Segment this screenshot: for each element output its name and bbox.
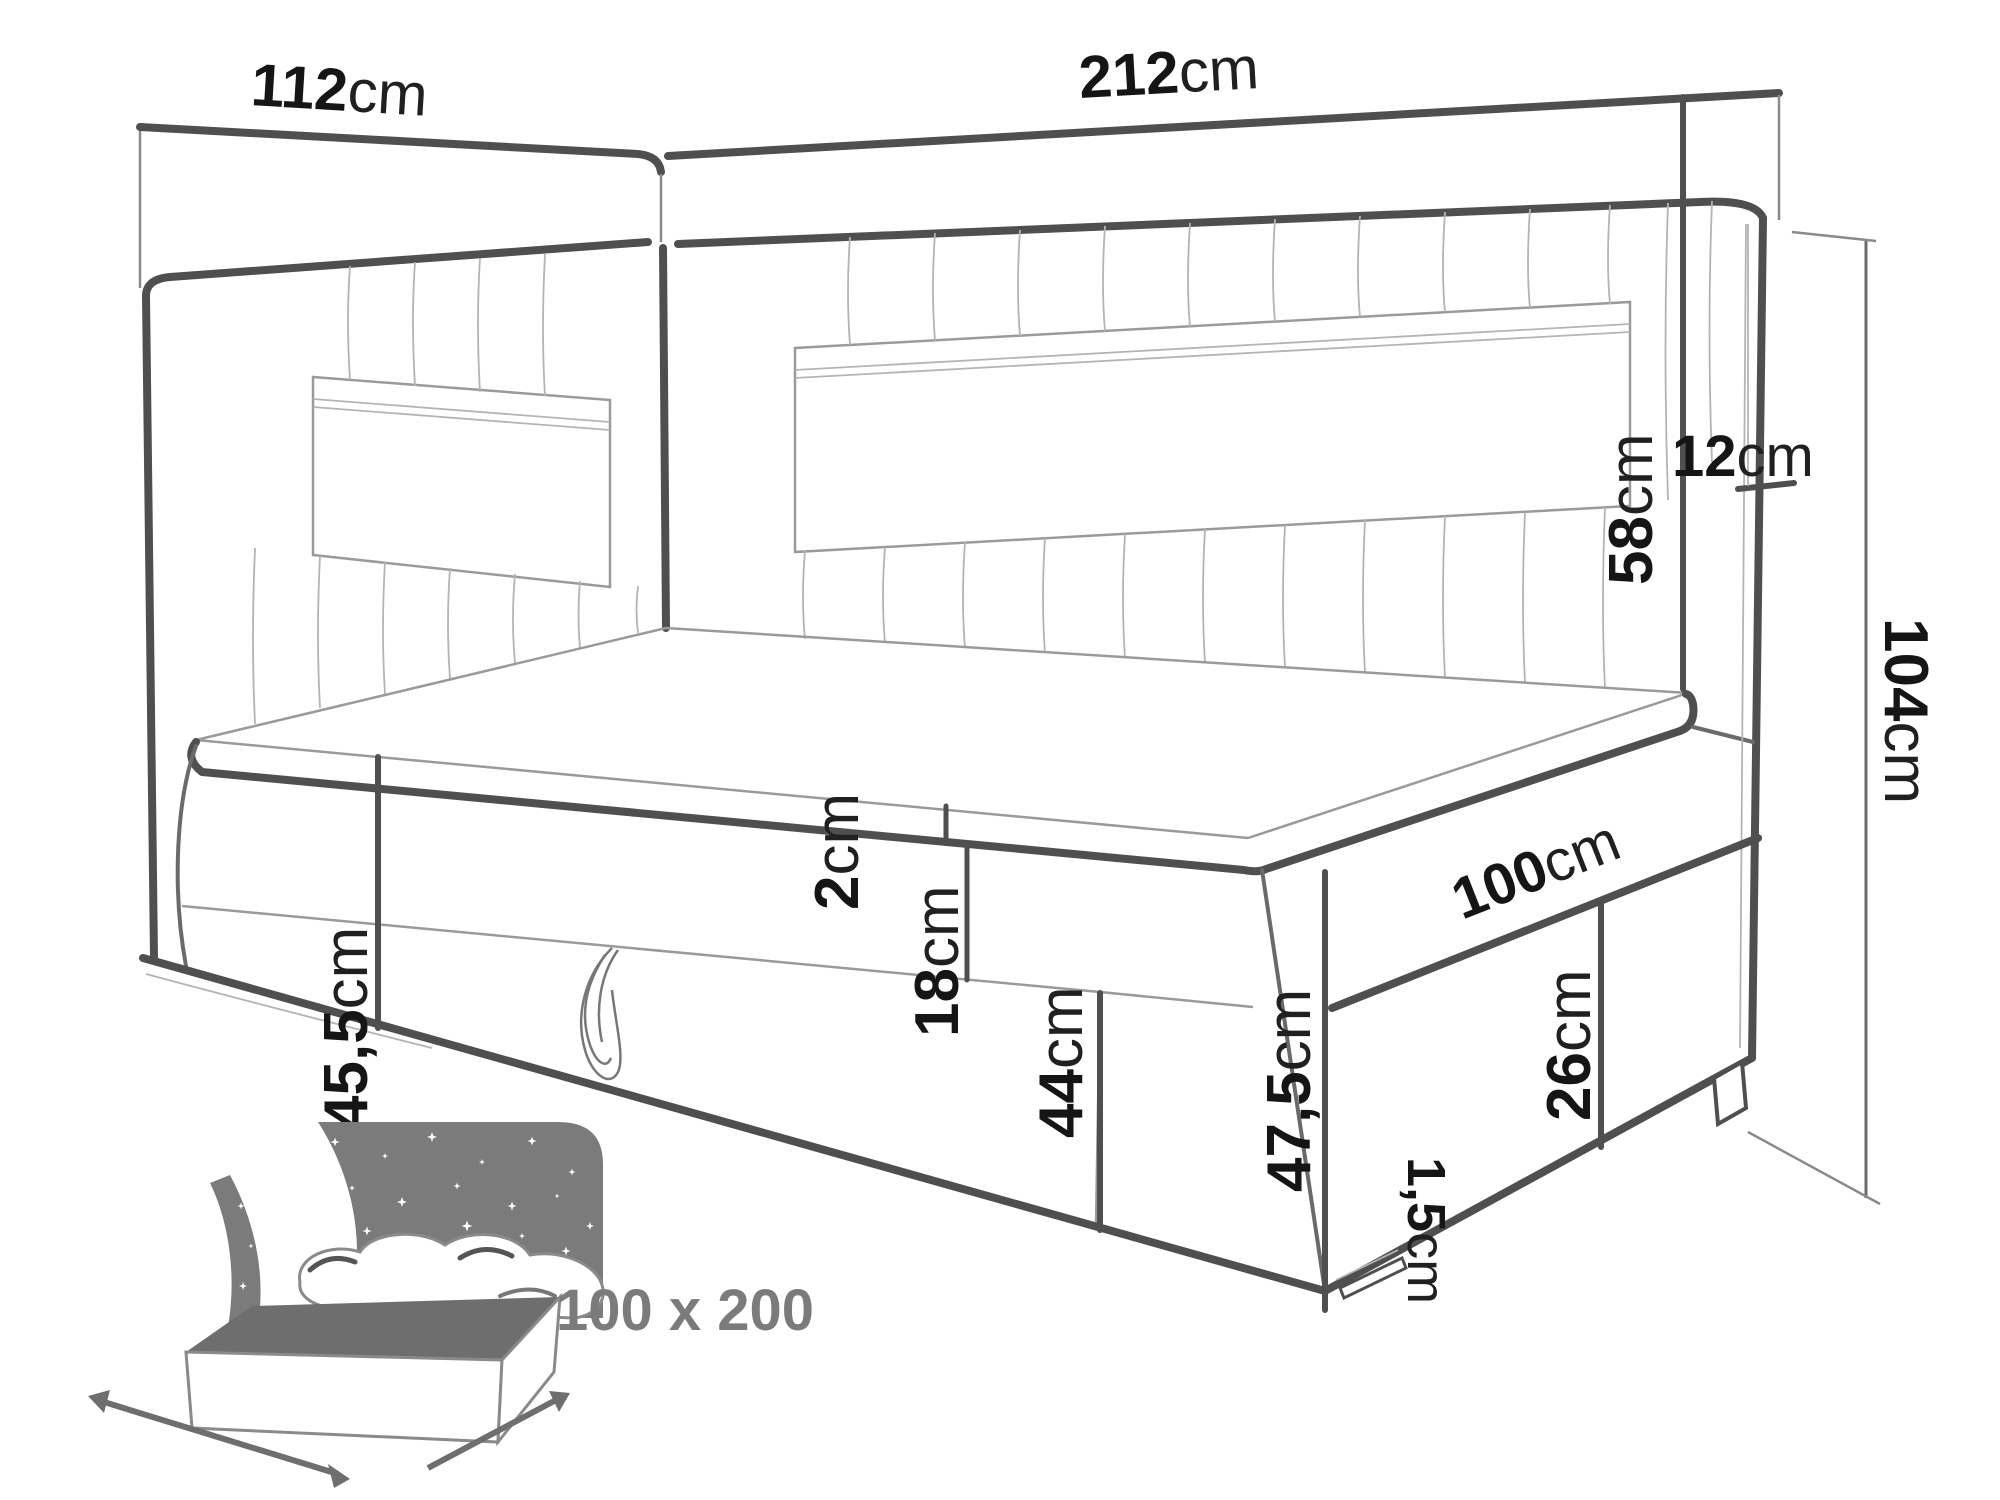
icon-mattress <box>186 1297 560 1442</box>
dim-18-label: 18cm <box>903 885 972 1037</box>
dim-12-label: 12cm <box>1672 424 1814 489</box>
left-headboard-wall <box>146 242 666 958</box>
dim-26-label: 26cm <box>1535 969 1604 1121</box>
dim-1-5-label: 1,5cm <box>1396 1157 1456 1304</box>
dim-2-label: 2cm <box>803 793 872 910</box>
dim-47-5-label: 47,5cm <box>1255 989 1324 1192</box>
drawer-handle <box>581 948 620 1079</box>
dim-104-label: 104cm <box>1871 618 1940 804</box>
bed-size-icon: 100 x 200 <box>88 1122 814 1488</box>
dim-212-label: 212cm <box>1077 34 1261 111</box>
dimension-212-line <box>668 93 1779 220</box>
dim-112-label: 112cm <box>249 51 430 129</box>
size-badge: 100 x 200 <box>556 1278 814 1343</box>
mattress-surface <box>191 628 1693 871</box>
dim-44-label: 44cm <box>1027 986 1096 1138</box>
dim-45-5-label: 45,5cm <box>312 927 381 1130</box>
diagram-svg: 112cm 212cm 12cm 58cm 104cm 45,5cm 2cm 1… <box>0 0 2000 1500</box>
bed-dimension-diagram: 112cm 212cm 12cm 58cm 104cm 45,5cm 2cm 1… <box>0 0 2000 1500</box>
dim-58-label: 58cm <box>1597 433 1666 585</box>
